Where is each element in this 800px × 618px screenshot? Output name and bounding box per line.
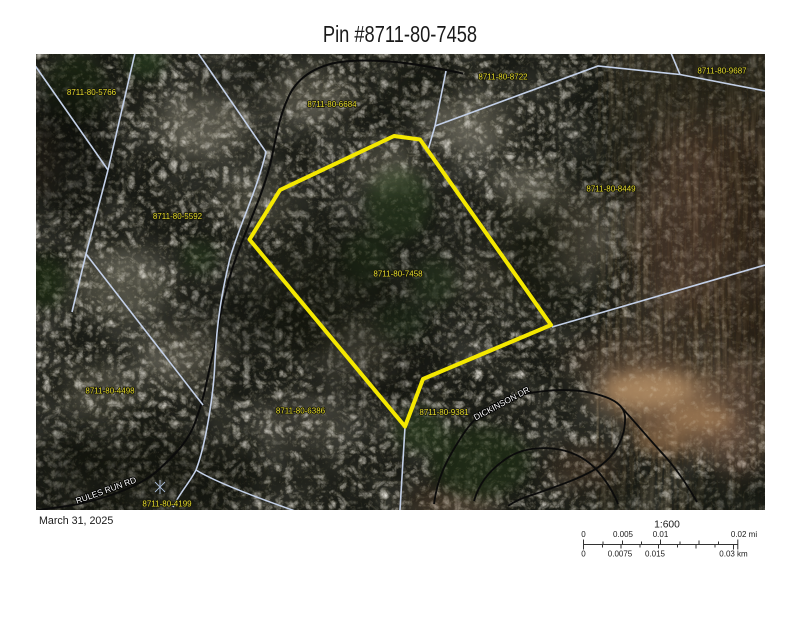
svg-text:8711-80-4498: 8711-80-4498 [85, 387, 135, 396]
svg-text:0: 0 [581, 530, 586, 539]
svg-text:0.015: 0.015 [645, 550, 666, 559]
svg-text:8711-80-7458: 8711-80-7458 [373, 270, 423, 279]
svg-text:8711-80-4199: 8711-80-4199 [142, 500, 192, 509]
svg-text:8711-80-5592: 8711-80-5592 [153, 212, 203, 221]
svg-text:8711-80-6684: 8711-80-6684 [307, 100, 357, 109]
svg-text:0.0075: 0.0075 [608, 550, 633, 559]
svg-text:0.005: 0.005 [613, 530, 634, 539]
svg-text:8711-80-9381: 8711-80-9381 [419, 408, 469, 417]
svg-text:8711-80-9687: 8711-80-9687 [697, 67, 747, 76]
svg-text:8711-80-6386: 8711-80-6386 [276, 407, 326, 416]
svg-text:8711-80-8449: 8711-80-8449 [586, 185, 636, 194]
svg-text:0.03 km: 0.03 km [719, 550, 748, 559]
svg-text:8711-80-8722: 8711-80-8722 [478, 73, 528, 82]
svg-text:0.02 mi: 0.02 mi [731, 530, 757, 539]
svg-text:1:600: 1:600 [654, 520, 680, 531]
svg-text:0.01: 0.01 [653, 530, 669, 539]
svg-text:0: 0 [581, 550, 586, 559]
svg-text:8711-80-5766: 8711-80-5766 [67, 88, 117, 97]
